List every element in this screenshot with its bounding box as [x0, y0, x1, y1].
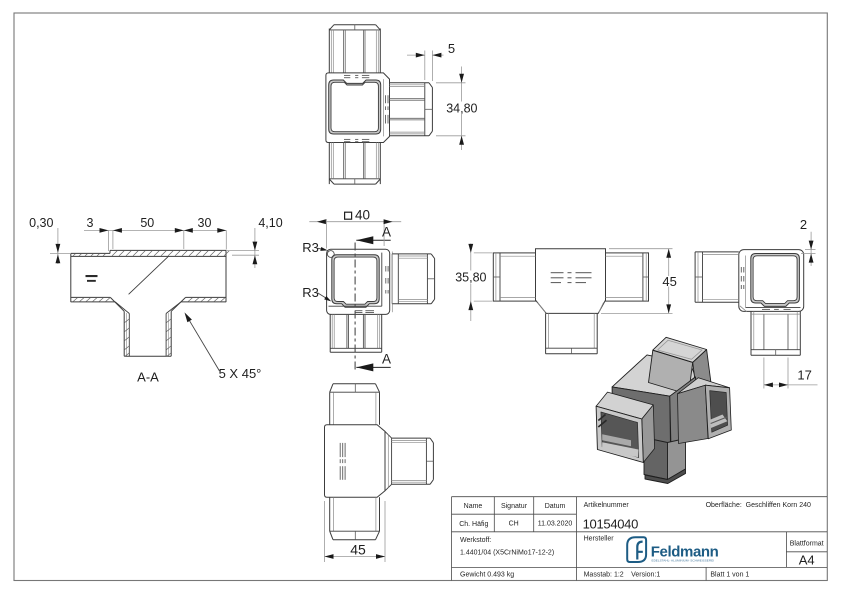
svg-text:Datum: Datum — [545, 503, 566, 510]
svg-text:Name: Name — [464, 503, 483, 510]
svg-text:A4: A4 — [799, 553, 815, 568]
svg-text:Signatur: Signatur — [501, 503, 528, 510]
svg-text:50: 50 — [140, 216, 154, 230]
svg-text:Version:1: Version:1 — [631, 572, 660, 579]
svg-text:10154040: 10154040 — [583, 517, 639, 532]
svg-text:34,80: 34,80 — [446, 102, 477, 116]
svg-text:3: 3 — [87, 216, 94, 230]
svg-text:Blatt 1 von 1: Blatt 1 von 1 — [710, 572, 749, 579]
svg-text:5: 5 — [448, 41, 455, 56]
svg-text:40: 40 — [355, 208, 370, 223]
svg-text:30: 30 — [198, 216, 212, 230]
svg-text:A: A — [382, 352, 391, 367]
svg-text:EDELSTAHL- ALUMINIUM- SCHWEISS: EDELSTAHL- ALUMINIUM- SCHWEISSEREI — [652, 558, 715, 562]
svg-text:Blattformat: Blattformat — [790, 540, 824, 547]
svg-text:A-A: A-A — [137, 370, 159, 385]
svg-text:Oberfläche: Geschliffen Korn: Oberfläche: Geschliffen Korn 240 — [706, 502, 811, 509]
svg-text:Hersteller: Hersteller — [584, 535, 615, 542]
svg-text:11.03.2020: 11.03.2020 — [538, 521, 573, 528]
svg-text:45: 45 — [350, 542, 366, 558]
svg-text:Ch. Häfig: Ch. Häfig — [459, 521, 488, 528]
svg-text:45: 45 — [662, 274, 676, 289]
svg-text:35,80: 35,80 — [455, 271, 486, 285]
svg-text:R3: R3 — [302, 240, 319, 255]
svg-text:17: 17 — [797, 368, 811, 383]
svg-text:Artikelnummer: Artikelnummer — [584, 502, 630, 509]
svg-text:0,30: 0,30 — [29, 216, 53, 230]
svg-text:4,10: 4,10 — [258, 216, 282, 230]
svg-text:Masstab: 1:2: Masstab: 1:2 — [584, 572, 624, 579]
svg-text:1.4401/04 (X5CrNiMo17-12-2): 1.4401/04 (X5CrNiMo17-12-2) — [460, 549, 554, 556]
svg-text:Werkstoff:: Werkstoff: — [460, 537, 491, 544]
svg-text:2: 2 — [800, 217, 807, 232]
svg-text:CH: CH — [509, 521, 519, 528]
svg-text:A: A — [382, 225, 391, 240]
svg-text:R3: R3 — [302, 285, 319, 300]
svg-text:Gewicht 0.493 kg: Gewicht 0.493 kg — [460, 572, 514, 579]
svg-text:5 X 45°: 5 X 45° — [219, 366, 262, 381]
